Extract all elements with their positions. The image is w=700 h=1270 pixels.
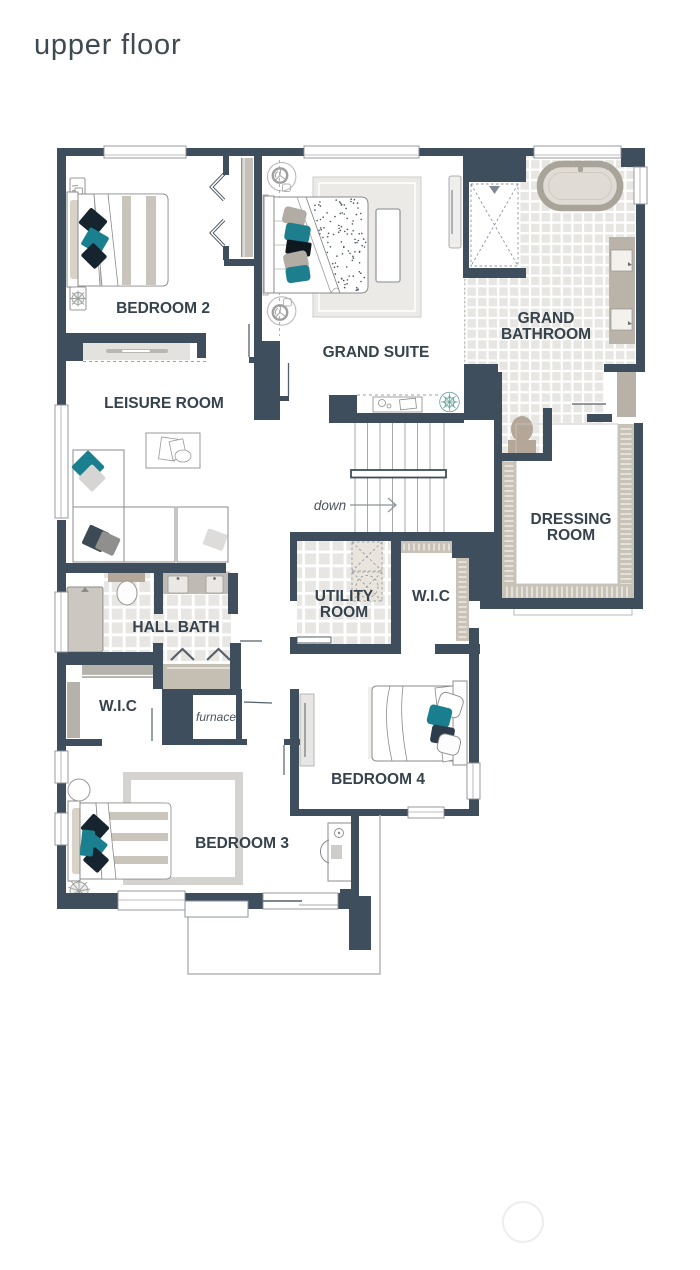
svg-text:BEDROOM 3: BEDROOM 3 (195, 835, 289, 852)
svg-text:ROOM: ROOM (320, 604, 368, 621)
svg-text:ROOM: ROOM (547, 527, 595, 544)
svg-text:down: down (314, 498, 346, 513)
svg-text:W.I.C: W.I.C (99, 698, 137, 715)
svg-text:HALL BATH: HALL BATH (132, 619, 219, 636)
svg-text:UTILITY: UTILITY (315, 588, 374, 605)
svg-text:GRAND SUITE: GRAND SUITE (323, 344, 430, 361)
svg-text:BEDROOM 2: BEDROOM 2 (116, 300, 210, 317)
svg-text:BATHROOM: BATHROOM (501, 326, 591, 343)
svg-text:BEDROOM 4: BEDROOM 4 (331, 771, 425, 788)
svg-text:LEISURE ROOM: LEISURE ROOM (104, 395, 224, 412)
svg-text:W.I.C: W.I.C (412, 588, 450, 605)
svg-text:upper floor: upper floor (34, 29, 181, 61)
svg-text:GRAND: GRAND (518, 310, 575, 327)
svg-text:furnace: furnace (196, 710, 236, 724)
svg-text:DRESSING: DRESSING (531, 511, 612, 528)
